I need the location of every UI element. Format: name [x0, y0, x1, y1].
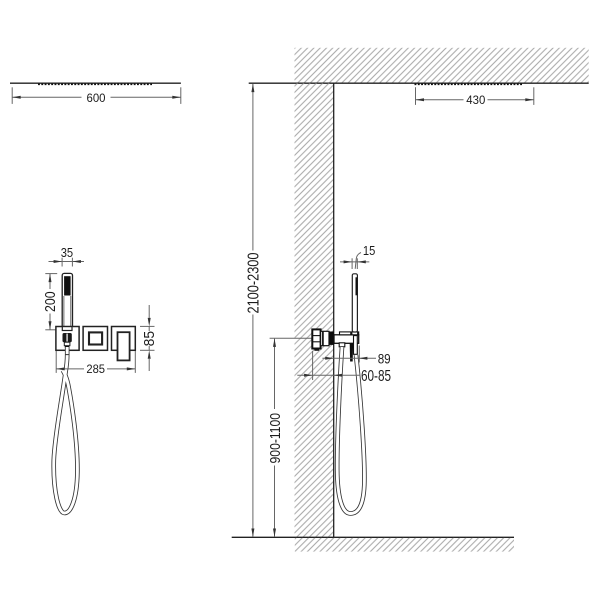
- svg-text:200: 200: [42, 291, 59, 312]
- svg-text:15: 15: [363, 243, 375, 258]
- svg-text:430: 430: [466, 93, 485, 107]
- svg-text:285: 285: [86, 362, 105, 376]
- svg-text:900-1100: 900-1100: [267, 413, 284, 464]
- svg-text:35: 35: [61, 245, 73, 260]
- svg-text:600: 600: [87, 91, 106, 105]
- svg-text:60-85: 60-85: [361, 368, 391, 385]
- svg-text:85: 85: [141, 331, 158, 347]
- svg-text:2100-2300: 2100-2300: [246, 252, 263, 313]
- svg-text:89: 89: [378, 350, 391, 366]
